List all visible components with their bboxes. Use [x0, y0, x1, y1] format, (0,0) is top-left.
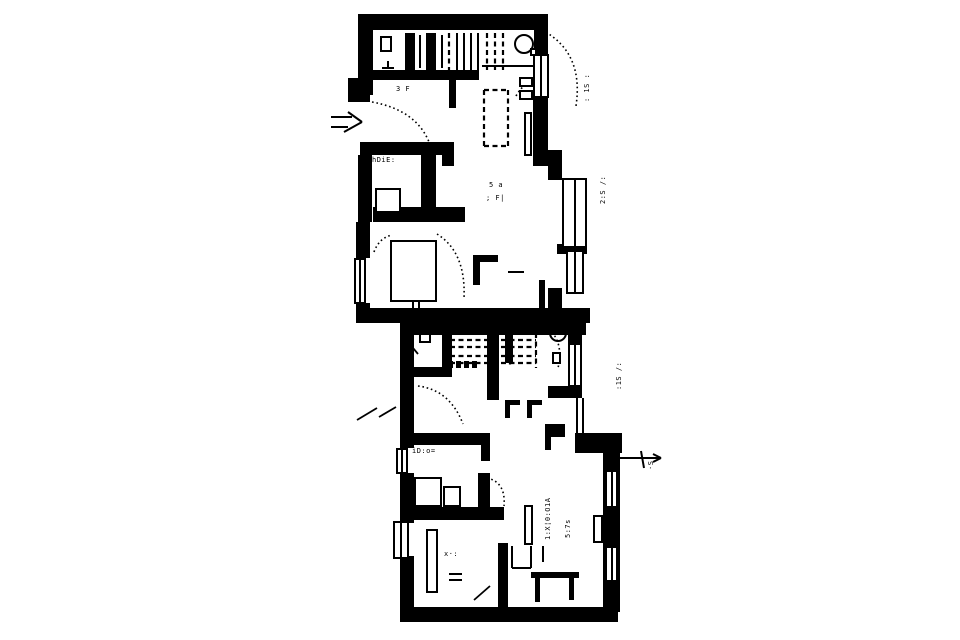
- plan-annotation-text: ·S:: [648, 456, 655, 470]
- plan-annotation-text: 2:S /:: [600, 176, 607, 204]
- wall-segment: [371, 70, 479, 80]
- plan-annotation-text: x·:: [444, 551, 458, 558]
- wall-segment: [505, 400, 510, 418]
- wall-segment: [400, 321, 414, 433]
- dimension-tick: [357, 408, 377, 420]
- fixture: [593, 515, 603, 543]
- plan-line: [344, 122, 362, 132]
- plan-annotation-text: :1S /:: [616, 362, 623, 390]
- wall-segment: [487, 314, 499, 400]
- wall-segment: [442, 142, 454, 166]
- window: [562, 178, 587, 248]
- plan-annotation-text: 5 a: [489, 182, 503, 189]
- wall-segment: [426, 33, 436, 73]
- wall-segment: [421, 150, 436, 210]
- wall-segment: [548, 164, 562, 180]
- plan-annotation-text: : 1S :: [584, 74, 591, 102]
- wall-segment: [545, 424, 551, 450]
- window-pane-line: [401, 450, 403, 472]
- wall-segment: [412, 507, 504, 520]
- window: [393, 521, 409, 559]
- fixture: [426, 529, 438, 593]
- window: [605, 470, 618, 508]
- plan-annotation-text: 5:7s: [565, 519, 572, 538]
- wall-segment: [348, 78, 370, 102]
- window: [605, 546, 618, 582]
- wall-segment: [505, 323, 513, 363]
- wall-segment: [400, 367, 452, 377]
- fixture: [519, 90, 533, 100]
- window: [396, 448, 408, 474]
- wall-segment: [527, 400, 532, 418]
- fixture: [375, 188, 401, 213]
- window: [354, 258, 366, 304]
- wall-segment: [358, 155, 372, 222]
- fixture: [524, 112, 532, 156]
- fixture: [443, 486, 461, 507]
- floor-plan-image: 3 FhDiE:5 a; F|iD:o=x·:1:X¦0:O1A5:7s: 1S…: [0, 0, 960, 640]
- fixture: [519, 77, 533, 87]
- fixture: [530, 48, 537, 56]
- fixture: [419, 333, 431, 343]
- door-swing-arc: [418, 386, 463, 424]
- wall-segment: [533, 92, 548, 158]
- plan-annotation-text: 3 F: [396, 86, 410, 93]
- wall-segment: [400, 433, 490, 445]
- window-pane-line: [574, 345, 576, 385]
- dimension-tick: [474, 586, 490, 600]
- window-pane-line: [540, 56, 542, 96]
- window: [566, 250, 584, 294]
- plan-annotation-text: iD:o=: [412, 448, 436, 455]
- window-pane-line: [611, 472, 613, 506]
- wall-segment: [481, 433, 490, 461]
- wall-segment: [404, 607, 618, 622]
- fixture: [414, 477, 442, 507]
- door-swing-arc: [437, 234, 464, 298]
- fixture: [390, 240, 437, 302]
- wall-segment: [548, 288, 562, 310]
- fixture: [380, 36, 392, 52]
- wall-segment: [448, 361, 453, 368]
- wall-segment: [548, 386, 582, 398]
- door-swing-arc: [372, 102, 429, 142]
- wall-segment: [356, 222, 370, 258]
- wall-segment: [472, 361, 477, 368]
- wall-segment: [535, 578, 540, 602]
- window: [533, 54, 549, 98]
- wall-segment: [360, 142, 454, 155]
- window: [568, 343, 582, 387]
- plan-annotation-text: 1:X¦0:O1A: [545, 498, 552, 540]
- plan-line: [348, 112, 362, 122]
- plan-annotation-text: hDiE:: [372, 157, 396, 164]
- wall-segment: [405, 33, 415, 73]
- window-pane-line: [611, 548, 613, 580]
- wall-segment: [358, 14, 548, 30]
- window-pane-line: [400, 523, 402, 557]
- wall-segment: [568, 330, 582, 343]
- wall-segment: [569, 578, 574, 600]
- dimension-tick: [379, 407, 396, 417]
- plan-annotation-text: ; F|: [486, 195, 505, 202]
- wall-segment: [473, 255, 480, 285]
- wall-segment: [498, 543, 508, 607]
- window-pane-line: [574, 180, 576, 246]
- fixture: [552, 352, 561, 364]
- wall-segment: [539, 280, 545, 310]
- window-pane-line: [359, 260, 361, 302]
- fixture: [524, 505, 533, 545]
- window-pane-line: [574, 252, 576, 292]
- plan-line: [641, 451, 644, 468]
- wall-segment: [464, 361, 469, 368]
- wall-segment: [456, 361, 461, 368]
- wall-segment: [478, 473, 490, 509]
